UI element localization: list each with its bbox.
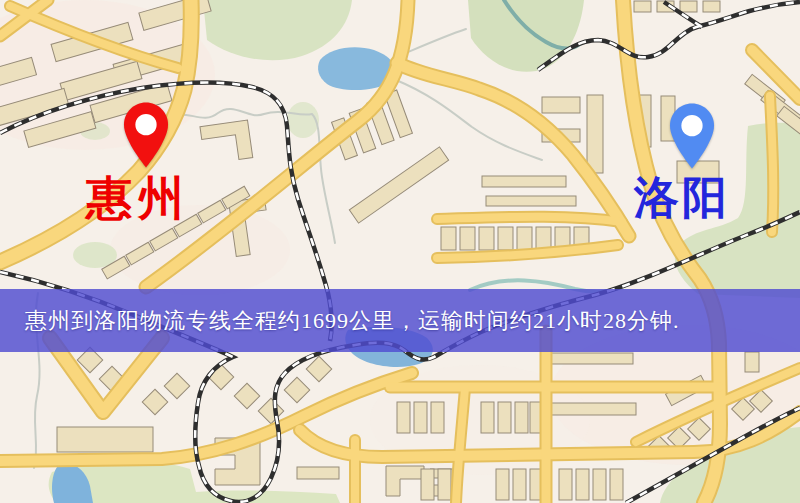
origin-pin[interactable] [120, 100, 172, 170]
map-image [0, 0, 800, 503]
route-info-banner: 惠州到洛阳物流专线全程约1699公里，运输时间约21小时28分钟. [0, 289, 800, 352]
origin-pin-icon [120, 100, 172, 170]
route-info-text: 惠州到洛阳物流专线全程约1699公里，运输时间约21小时28分钟. [25, 306, 680, 336]
pin-hole [681, 115, 702, 136]
destination-city-label: 洛阳 [634, 176, 730, 221]
pin-hole [135, 114, 156, 135]
origin-city-label: 惠州 [86, 176, 190, 222]
destination-pin-icon [666, 101, 718, 171]
destination-pin[interactable] [666, 101, 718, 171]
route-map: 惠州 洛阳 惠州到洛阳物流专线全程约1699公里，运输时间约21小时28分钟. [0, 0, 800, 503]
